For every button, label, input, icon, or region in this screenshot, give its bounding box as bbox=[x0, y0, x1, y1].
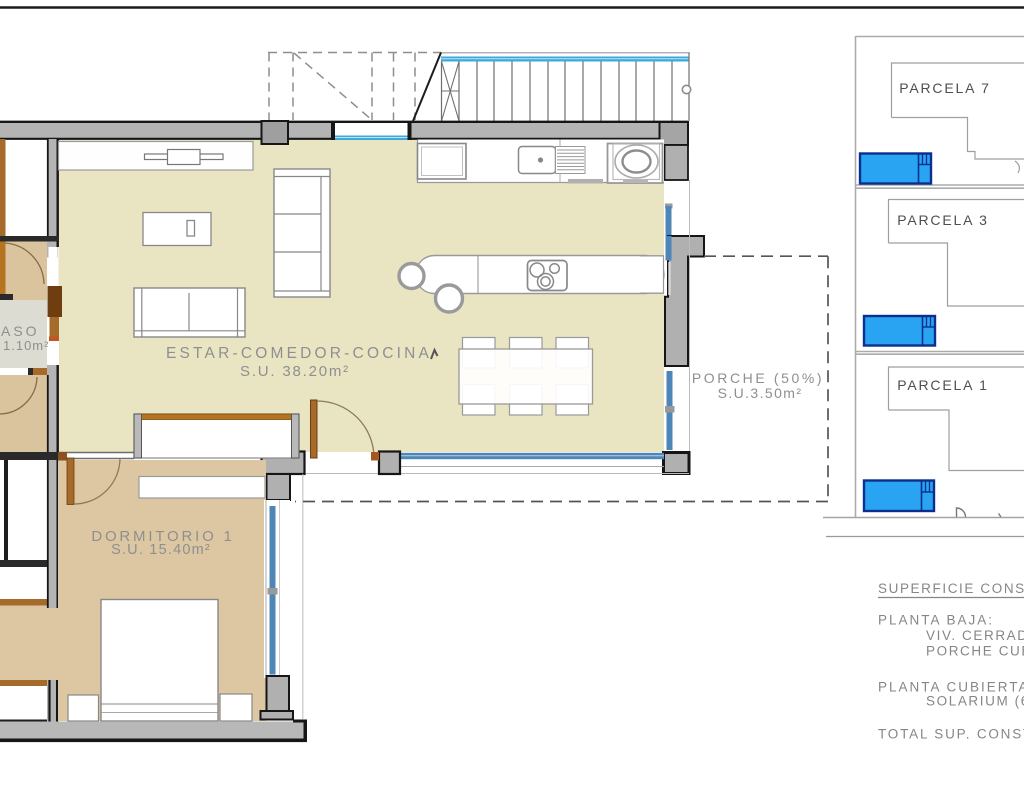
svg-text:PARCELA 1: PARCELA 1 bbox=[897, 377, 988, 393]
svg-text:PORCHE (50%): PORCHE (50%) bbox=[692, 370, 824, 386]
svg-text:PLANTA CUBIERTA:: PLANTA CUBIERTA: bbox=[878, 680, 1024, 695]
svg-text:SUPERFICIE CONSTRUIDA: SUPERFICIE CONSTRUIDA bbox=[878, 581, 1024, 596]
svg-text:S.U. 38.20m²: S.U. 38.20m² bbox=[240, 363, 350, 380]
svg-text:PORCHE CUBIERTO: PORCHE CUBIERTO bbox=[926, 644, 1024, 659]
svg-text:ASO: ASO bbox=[1, 323, 40, 339]
svg-text:VIV. CERRADA: VIV. CERRADA bbox=[926, 628, 1024, 643]
svg-text:PLANTA BAJA:: PLANTA BAJA: bbox=[878, 613, 994, 628]
svg-text:1.10m²: 1.10m² bbox=[3, 338, 49, 353]
svg-text:ESTAR-COMEDOR-COCINA: ESTAR-COMEDOR-COCINA bbox=[166, 345, 432, 362]
svg-text:SOLARIUM (6: SOLARIUM (6 bbox=[926, 694, 1024, 709]
svg-text:S.U. 15.40m²: S.U. 15.40m² bbox=[111, 542, 211, 558]
svg-text:PARCELA 7: PARCELA 7 bbox=[899, 80, 990, 96]
svg-text:TOTAL SUP. CONSTRUIDA: TOTAL SUP. CONSTRUIDA bbox=[878, 727, 1024, 742]
svg-text:PARCELA 3: PARCELA 3 bbox=[897, 212, 988, 228]
svg-text:S.U.3.50m²: S.U.3.50m² bbox=[718, 385, 803, 401]
